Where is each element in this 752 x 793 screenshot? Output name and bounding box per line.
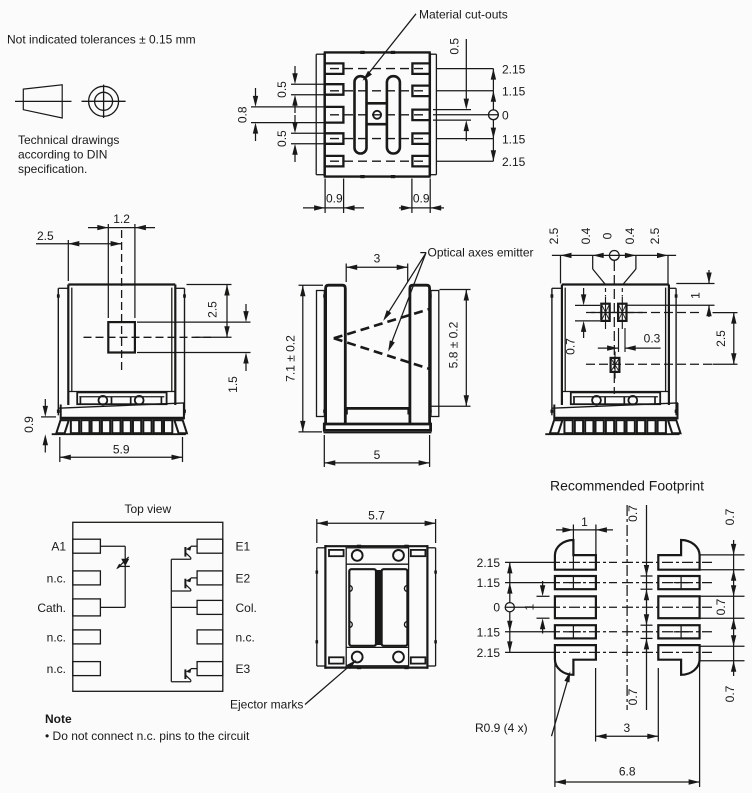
svg-text:n.c.: n.c. (47, 630, 66, 644)
svg-text:5: 5 (374, 448, 381, 462)
svg-text:1: 1 (689, 292, 703, 299)
svg-text:6.8: 6.8 (619, 764, 636, 778)
svg-text:Cath.: Cath. (37, 601, 66, 615)
svg-text:0.8: 0.8 (236, 106, 250, 123)
svg-text:according to DIN: according to DIN (18, 148, 107, 162)
svg-text:2.15: 2.15 (502, 155, 526, 169)
svg-text:0.4: 0.4 (623, 227, 637, 244)
svg-text:2.5: 2.5 (37, 229, 54, 243)
svg-text:Not indicated tolerances ± 0.1: Not indicated tolerances ± 0.15 mm (7, 33, 196, 47)
svg-text:0.3: 0.3 (644, 331, 661, 345)
svg-text:1.2: 1.2 (113, 212, 130, 226)
svg-text:Col.: Col. (236, 601, 257, 615)
svg-text:3: 3 (374, 252, 381, 266)
svg-text:0.7: 0.7 (626, 688, 640, 705)
svg-text:7.1 ± 0.2: 7.1 ± 0.2 (283, 335, 297, 382)
svg-text:specification.: specification. (18, 162, 87, 176)
svg-text:R0.9 (4 x): R0.9 (4 x) (475, 721, 528, 735)
svg-text:A1: A1 (51, 540, 66, 554)
svg-text:0: 0 (502, 108, 509, 122)
svg-text:Ejector marks: Ejector marks (230, 698, 303, 712)
svg-text:0.9: 0.9 (413, 192, 430, 206)
svg-text:0.5: 0.5 (275, 130, 289, 147)
svg-text:2.5: 2.5 (206, 301, 220, 318)
svg-text:0.9: 0.9 (22, 416, 36, 433)
svg-text:5.7: 5.7 (368, 508, 385, 522)
svg-text:n.c.: n.c. (47, 571, 66, 585)
svg-text:0.9: 0.9 (326, 192, 343, 206)
svg-text:n.c.: n.c. (47, 662, 66, 676)
svg-text:0.7: 0.7 (714, 598, 728, 615)
svg-text:1.15: 1.15 (502, 84, 526, 98)
svg-text:0: 0 (493, 601, 500, 615)
svg-text:2.15: 2.15 (477, 646, 501, 660)
svg-text:2.15: 2.15 (477, 556, 501, 570)
svg-text:2.5: 2.5 (648, 227, 662, 244)
svg-text:2.5: 2.5 (547, 227, 561, 244)
svg-text:2.5: 2.5 (714, 330, 728, 347)
svg-text:E1: E1 (236, 540, 251, 554)
svg-text:n.c.: n.c. (236, 630, 255, 644)
svg-text:1: 1 (522, 604, 536, 611)
svg-text:0.7: 0.7 (723, 508, 737, 525)
svg-text:1.15: 1.15 (477, 576, 501, 590)
svg-text:1.15: 1.15 (477, 625, 501, 639)
svg-text:0.7: 0.7 (626, 505, 640, 522)
svg-text:0.7: 0.7 (723, 685, 737, 702)
svg-text:Optical axes emitter: Optical axes emitter (428, 246, 534, 260)
svg-text:0.5: 0.5 (275, 81, 289, 98)
svg-text:5.9: 5.9 (113, 442, 130, 456)
svg-text:• Do not connect n.c. pins to: • Do not connect n.c. pins to the circui… (45, 729, 250, 743)
svg-text:Top view: Top view (124, 502, 171, 516)
svg-text:Technical drawings: Technical drawings (18, 133, 119, 147)
svg-text:Material cut-outs: Material cut-outs (419, 7, 508, 21)
svg-text:0.7: 0.7 (564, 338, 578, 355)
svg-text:0.4: 0.4 (579, 227, 593, 244)
svg-text:E2: E2 (236, 571, 251, 585)
svg-text:0: 0 (601, 232, 615, 239)
svg-text:5.8 ± 0.2: 5.8 ± 0.2 (447, 321, 461, 368)
svg-text:3: 3 (624, 721, 631, 735)
svg-text:2.15: 2.15 (502, 62, 526, 76)
svg-text:1: 1 (581, 515, 588, 529)
svg-text:1.15: 1.15 (502, 132, 526, 146)
svg-text:Recommended Footprint: Recommended Footprint (550, 477, 704, 493)
svg-text:E3: E3 (236, 662, 251, 676)
svg-text:0.5: 0.5 (448, 38, 462, 55)
svg-text:Note: Note (45, 712, 72, 726)
svg-text:1.5: 1.5 (226, 376, 240, 393)
